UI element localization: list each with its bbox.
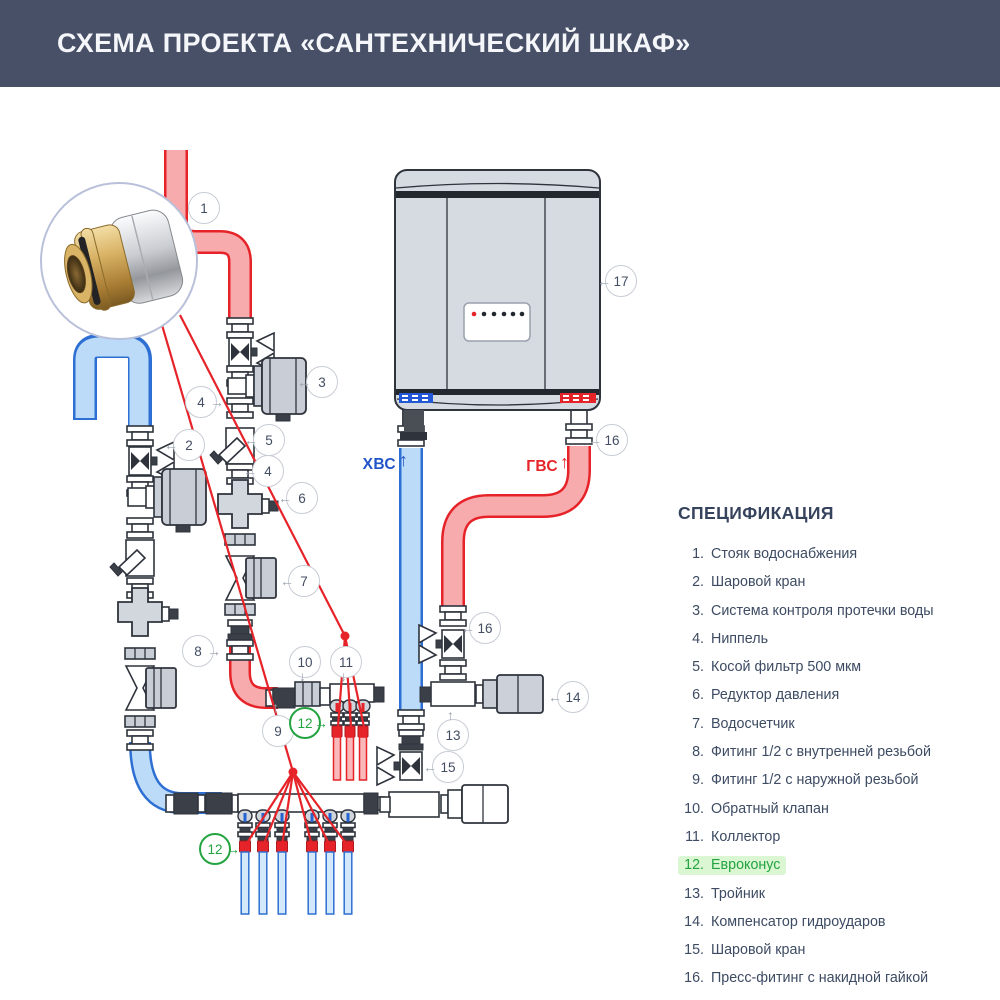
specification-title: СПЕЦИФИКАЦИЯ xyxy=(678,503,996,524)
spec-item-9: 9.Фитинг 1/2 с наружной резьбой xyxy=(678,771,924,789)
spec-item-3: 3.Система контроля протечки воды xyxy=(678,602,940,620)
callout-8-arrow-right-icon: → xyxy=(207,644,221,658)
specification-panel: СПЕЦИФИКАЦИЯ 1.Стояк водоснабжения 2.Шар… xyxy=(678,503,996,1000)
spec-item-7: 7.Водосчетчик xyxy=(678,715,801,733)
callout-3-arrow-left-icon: ← xyxy=(297,375,311,389)
spec-item-13: 13.Тройник xyxy=(678,885,771,903)
spec-item-15: 15.Шаровой кран xyxy=(678,941,811,959)
callout-13: 13 xyxy=(437,719,469,751)
callout-7-arrow-left-icon: ← xyxy=(280,574,294,588)
callout-1: 1 xyxy=(188,192,220,224)
cold-riser-column xyxy=(110,426,206,750)
callout-11-arrow-down-icon: ↓ xyxy=(340,669,347,683)
callout-14-arrow-left-icon: ← xyxy=(548,690,562,704)
spec-item-2: 2.Шаровой кран xyxy=(678,573,811,591)
callout-6-arrow-left-icon: ← xyxy=(278,491,292,505)
hot-port-label xyxy=(560,393,596,403)
cold-supply-label: ХВС xyxy=(352,456,396,474)
callout-15-arrow-left-icon: ← xyxy=(423,760,437,774)
spec-item-12-highlighted: 12.Евроконус xyxy=(678,856,786,874)
callout-17-arrow-left-icon: ← xyxy=(597,274,611,288)
spec-item-16: 16.Пресс-фитинг с накидной гайкой xyxy=(678,969,934,987)
callout-16a-arrow-left-icon: ← xyxy=(588,433,602,447)
spec-item-8: 8.Фитинг 1/2 с внутренней резьбой xyxy=(678,743,937,761)
hot-supply-label: ГВС xyxy=(514,458,558,476)
specification-list: 1.Стояк водоснабжения 2.Шаровой кран 3.С… xyxy=(678,545,996,1000)
callout-16b-arrow-left-icon: ← xyxy=(461,621,475,635)
callout-10-arrow-down-icon: ↓ xyxy=(299,669,306,683)
callout-5-arrow-left-icon: ← xyxy=(244,433,258,447)
spec-item-1: 1.Стояк водоснабжения xyxy=(678,545,863,563)
hot-flow-arrow-up-icon: ↑ xyxy=(560,453,569,471)
spec-item-5: 5.Косой фильтр 500 мкм xyxy=(678,658,867,676)
callout-12a-arrow-right-icon: → xyxy=(314,716,328,730)
water-heater xyxy=(395,170,600,440)
spec-item-4: 4.Ниппель xyxy=(678,630,774,648)
callout-4b-arrow-left-icon: ← xyxy=(243,464,257,478)
callout-4a-arrow-right-icon: → xyxy=(210,395,224,409)
callout-9-arrow-up-icon: ↑ xyxy=(272,700,279,714)
callout-12b-arrow-right-icon: → xyxy=(226,842,240,856)
spec-item-10: 10.Обратный клапан xyxy=(678,800,835,818)
spec-item-6: 6.Редуктор давления xyxy=(678,686,845,704)
cold-port-label xyxy=(399,393,433,403)
callout-2-arrow-left-icon: ← xyxy=(164,438,178,452)
spec-item-11: 11.Коллектор xyxy=(678,828,786,846)
page: СХЕМА ПРОЕКТА «САНТЕХНИЧЕСКИЙ ШКАФ» xyxy=(0,0,1000,1000)
cold-flow-arrow-up-icon: ↑ xyxy=(399,451,408,469)
spec-item-14: 14.Компенсатор гидроударов xyxy=(678,913,892,931)
callout-13-arrow-up-icon: ↑ xyxy=(447,708,454,722)
inset-photo-circle xyxy=(41,183,197,339)
